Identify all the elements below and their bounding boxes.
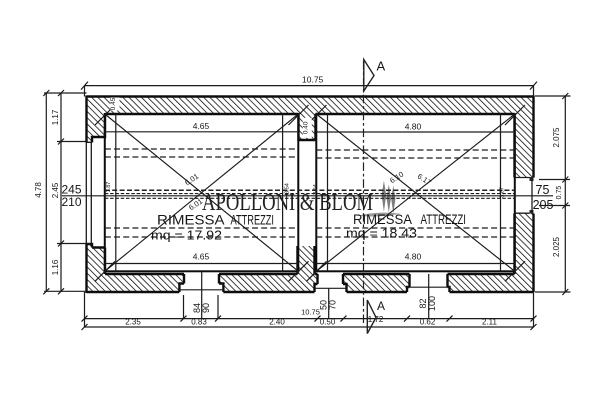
svg-text:10.75: 10.75 <box>302 75 324 85</box>
svg-text:2.025: 2.025 <box>552 236 561 257</box>
svg-text:A: A <box>377 59 386 74</box>
svg-text:90: 90 <box>201 303 211 313</box>
svg-text:210: 210 <box>61 195 81 209</box>
svg-text:3.87: 3.87 <box>106 182 112 193</box>
svg-text:4.65: 4.65 <box>193 121 210 131</box>
svg-text:4.80: 4.80 <box>405 121 422 131</box>
svg-text:10.75: 10.75 <box>301 308 320 317</box>
svg-text:1.16: 1.16 <box>51 259 60 275</box>
svg-text:0.50: 0.50 <box>320 318 336 327</box>
svg-text:2.40: 2.40 <box>269 318 285 327</box>
svg-text:0.40: 0.40 <box>302 121 309 134</box>
svg-text:RIMESSA: RIMESSA <box>157 212 225 228</box>
svg-text:0.75: 0.75 <box>556 186 563 200</box>
svg-text:0.45: 0.45 <box>110 97 117 110</box>
svg-text:4.78: 4.78 <box>34 182 43 198</box>
svg-text:2.35: 2.35 <box>125 318 141 327</box>
svg-text:205: 205 <box>533 198 554 212</box>
svg-text:0.83: 0.83 <box>191 318 207 327</box>
svg-text:70: 70 <box>328 300 338 310</box>
svg-text:1.17: 1.17 <box>51 109 60 125</box>
svg-text:2.075: 2.075 <box>552 127 561 148</box>
svg-text:mq = 17.92: mq = 17.92 <box>151 228 222 243</box>
svg-text:3.54: 3.54 <box>284 183 290 194</box>
svg-text:ATTREZZI: ATTREZZI <box>231 212 275 228</box>
svg-text:3.87: 3.87 <box>500 187 506 198</box>
svg-text:A: A <box>377 299 385 313</box>
svg-text:ATTREZZI: ATTREZZI <box>421 211 467 227</box>
svg-text:4.80: 4.80 <box>405 252 422 262</box>
svg-text:0.62: 0.62 <box>420 318 436 327</box>
svg-text:2.45: 2.45 <box>51 182 60 198</box>
svg-text:mq = 18.43: mq = 18.43 <box>346 226 417 241</box>
svg-text:4.65: 4.65 <box>193 252 210 262</box>
svg-text:2.11: 2.11 <box>482 318 498 327</box>
svg-text:100: 100 <box>427 296 437 311</box>
svg-text:3.54: 3.54 <box>313 184 319 195</box>
svg-text:1.72: 1.72 <box>368 315 384 324</box>
svg-text:75: 75 <box>536 183 550 197</box>
